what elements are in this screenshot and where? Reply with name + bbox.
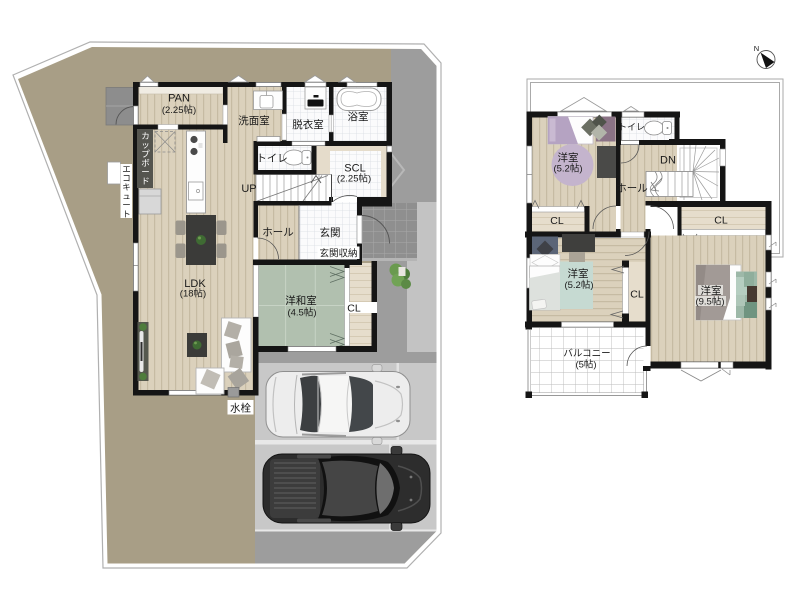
svg-text:エコキュート: エコキュート (122, 164, 131, 219)
svg-text:N: N (754, 44, 759, 53)
svg-text:PAN: PAN (168, 93, 190, 105)
svg-text:ホール: ホール (262, 227, 294, 239)
svg-text:洋室: 洋室 (568, 267, 589, 280)
svg-text:洋室: 洋室 (701, 284, 722, 297)
svg-text:CL: CL (347, 303, 361, 315)
svg-text:水栓: 水栓 (230, 402, 251, 415)
svg-text:CL: CL (550, 215, 564, 227)
svg-text:洋室: 洋室 (558, 151, 579, 164)
svg-text:(4.5帖): (4.5帖) (287, 307, 316, 319)
svg-text:CL: CL (630, 289, 644, 301)
svg-text:カップボード: カップボード (141, 131, 150, 186)
svg-text:浴室: 浴室 (348, 110, 369, 123)
svg-text:UP: UP (241, 183, 256, 195)
svg-text:CL: CL (714, 215, 728, 227)
svg-text:(9.5帖): (9.5帖) (695, 296, 724, 308)
svg-text:バルコニー: バルコニー (563, 349, 610, 360)
svg-text:(2.25帖): (2.25帖) (162, 104, 196, 116)
svg-text:玄関収納: 玄関収納 (319, 248, 357, 260)
svg-text:(5.2帖): (5.2帖) (564, 279, 593, 291)
svg-text:トイレ: トイレ (618, 122, 645, 132)
svg-text:玄関: 玄関 (320, 226, 341, 239)
svg-text:(2.25帖): (2.25帖) (337, 173, 371, 185)
svg-text:洋和室: 洋和室 (285, 294, 317, 307)
svg-text:脱衣室: 脱衣室 (292, 118, 324, 131)
svg-text:(5.2帖): (5.2帖) (553, 163, 582, 175)
svg-text:(5帖): (5帖) (575, 359, 596, 371)
svg-text:洗面室: 洗面室 (238, 114, 270, 127)
svg-text:(18帖): (18帖) (180, 288, 206, 300)
svg-text:DN: DN (660, 155, 676, 167)
svg-text:ホール: ホール (616, 183, 648, 195)
svg-text:トイレ: トイレ (256, 153, 288, 165)
